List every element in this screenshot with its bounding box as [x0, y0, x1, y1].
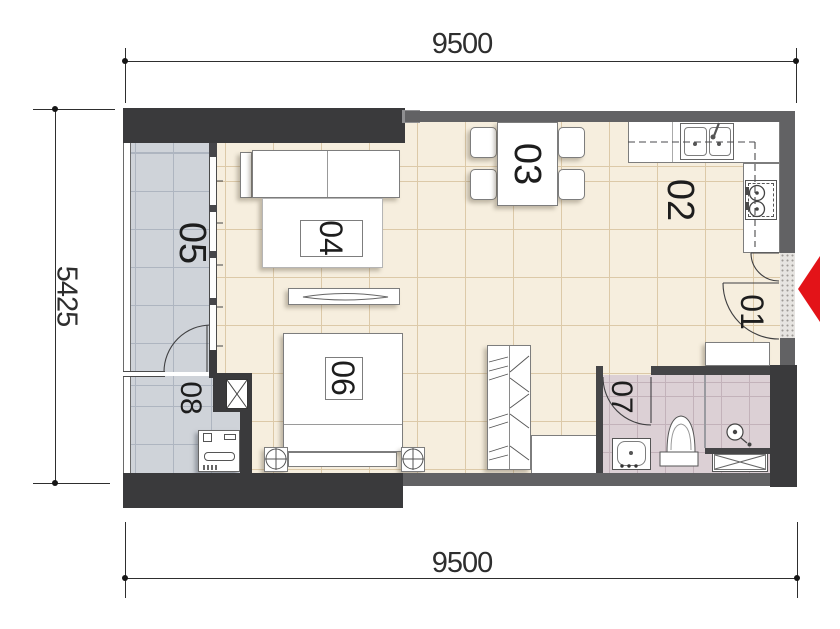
- glass-wall-mullion: [209, 298, 217, 305]
- dim-dot: [52, 480, 58, 486]
- balcony-partition: [123, 371, 165, 377]
- shower-ledge: [705, 448, 770, 454]
- dim-dot: [794, 575, 800, 581]
- window-ticks: [217, 181, 223, 346]
- dim-ext: [797, 522, 798, 598]
- dim-ext: [796, 48, 797, 103]
- room-label-04: 04: [315, 220, 347, 256]
- dim-dot: [793, 58, 799, 64]
- dim-dot: [122, 58, 128, 64]
- dim-dot: [122, 575, 128, 581]
- lamp-icon: [265, 448, 424, 470]
- shower-x: [715, 455, 765, 469]
- wall-right-lower: [770, 365, 797, 487]
- column-x: [227, 380, 247, 408]
- room-label-05: 05: [173, 222, 211, 264]
- dim-label-top: 9500: [410, 28, 514, 61]
- dim-dot: [52, 106, 58, 112]
- toilet-icon: [660, 416, 698, 466]
- balcony-railing: [123, 143, 131, 473]
- wall-right-upper: [780, 111, 795, 253]
- door-swing-icon: [164, 253, 779, 425]
- dim-ext: [33, 483, 110, 484]
- shower-head-icon: [727, 424, 752, 447]
- wall-top-left: [123, 108, 405, 143]
- dim-ext: [125, 522, 126, 598]
- dim-label-bottom: 9500: [410, 547, 514, 580]
- bath-sink-dots: [620, 464, 637, 467]
- entrance-opening: [780, 253, 795, 338]
- entrance-arrow-icon: [798, 256, 820, 322]
- wall-top: [405, 111, 795, 122]
- room-label-07: 07: [606, 380, 636, 413]
- bath-wall-left: [596, 366, 603, 473]
- wall-right-mid: [780, 338, 795, 368]
- wall-bottom: [403, 473, 770, 486]
- room-label-08: 08: [175, 381, 205, 414]
- dim-label-left: 5425: [52, 266, 81, 327]
- bath-wall-top: [651, 366, 770, 375]
- glass-wall-end: [209, 350, 217, 378]
- floor-plan: 9500 9500 5425 01 02 03 04 05 06 07 08: [0, 0, 840, 629]
- room-label-03: 03: [508, 143, 546, 185]
- stove-burners: [750, 186, 765, 217]
- wall-bottom-left: [123, 473, 403, 508]
- dim-ext: [125, 48, 126, 103]
- room-label-02: 02: [661, 179, 699, 221]
- shower-glass-line: [704, 375, 706, 448]
- wardrobe-hatch: [489, 356, 529, 460]
- room-label-01: 01: [736, 294, 768, 330]
- dim-ext: [33, 109, 115, 110]
- glass-wall-mullion: [209, 205, 217, 212]
- glass-wall-mullion: [209, 143, 217, 157]
- room-label-06: 06: [327, 360, 359, 396]
- tv-icon: [303, 294, 388, 301]
